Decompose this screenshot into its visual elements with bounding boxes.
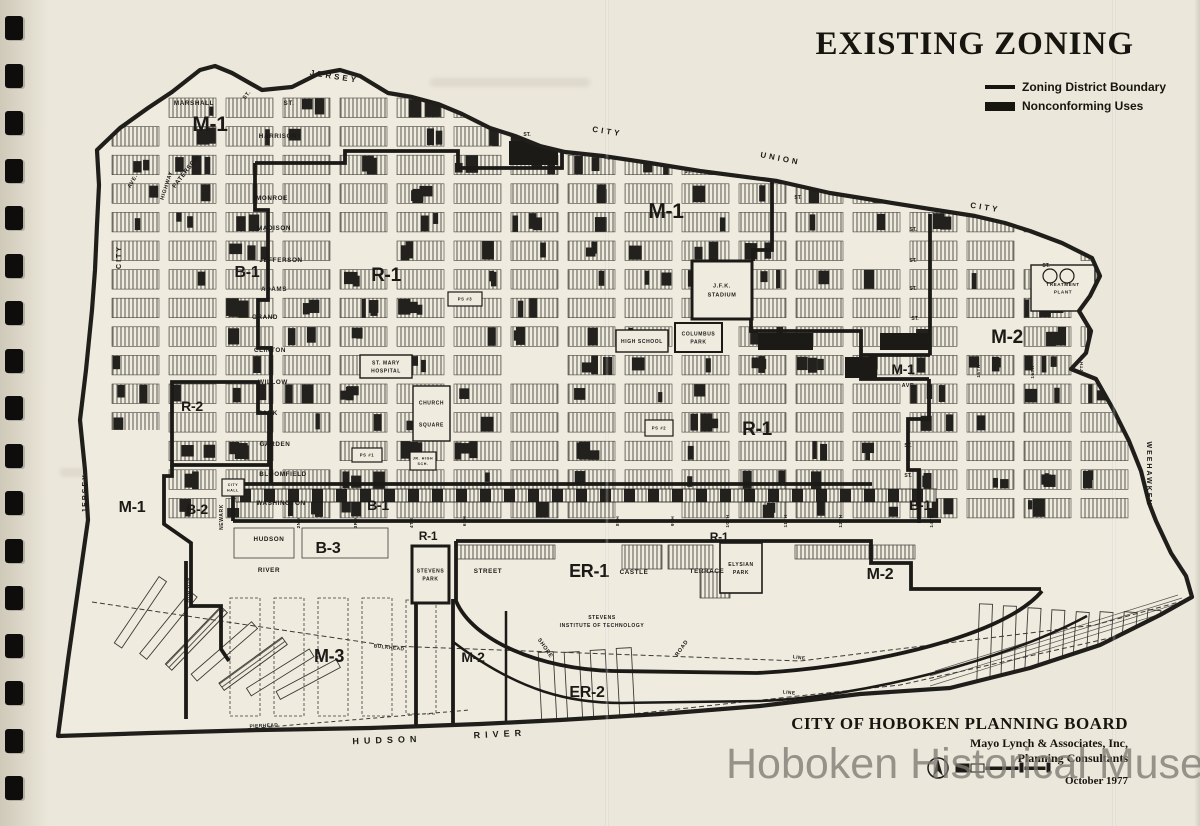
city-block: [967, 241, 1014, 261]
nonconforming-use: [455, 443, 461, 460]
city-block: [910, 470, 957, 490]
zone-label: R-1: [742, 419, 772, 440]
tank-icon: [1043, 269, 1057, 283]
city-block: [169, 241, 216, 261]
city-block: [340, 127, 387, 147]
city-block: [454, 241, 501, 261]
nonconforming-use: [578, 128, 590, 146]
landmark-label: ELYSIAN: [728, 562, 753, 568]
nonconforming-use: [260, 384, 267, 400]
nonconforming-use: [286, 385, 293, 404]
nonconforming-use: [700, 128, 706, 141]
street-label: BLOOMFIELD: [259, 471, 307, 478]
municipality-label: CITY: [116, 245, 123, 269]
landmark-label: PLANT: [1054, 289, 1072, 294]
numbered-street-label: 16TH: [1030, 365, 1036, 378]
street-label: GARDEN: [260, 441, 291, 448]
nonconforming-use: [233, 388, 241, 402]
nonconforming-use: [720, 217, 726, 231]
city-block: [967, 127, 1014, 147]
city-block: [112, 298, 159, 318]
city-block: [853, 155, 900, 175]
nonconforming-use: [459, 388, 469, 399]
nonconforming-use: [421, 216, 429, 232]
landmark-label: STEVENS: [588, 615, 616, 621]
nonconforming-use: [776, 270, 780, 288]
nonconforming-use: [592, 157, 600, 171]
landmark-outline: [412, 546, 449, 603]
nonconforming-use: [302, 384, 314, 403]
landmark-outline: [360, 355, 412, 378]
city-block: [739, 441, 786, 461]
nonconforming-use: [979, 155, 990, 173]
street-tick: ST.: [794, 195, 802, 201]
nonconforming-use: [529, 299, 536, 318]
nonconforming-use: [187, 216, 193, 228]
city-block: [910, 127, 957, 147]
municipality-label: UNION: [760, 150, 802, 167]
city-block: [454, 470, 501, 490]
landmark-label: PS #1: [360, 452, 374, 457]
nonconforming-use: [582, 362, 593, 372]
nonconforming-use: [247, 245, 255, 260]
city-block: [1081, 127, 1128, 147]
zone-label: B-3: [316, 540, 341, 557]
nonconforming-use: [817, 359, 824, 370]
zone-label: ER-2: [569, 684, 605, 701]
nonconforming-use: [182, 445, 194, 457]
nonconforming-use: [1056, 213, 1064, 228]
city-block: [283, 184, 330, 204]
nonconforming-use: [370, 300, 377, 316]
street-label: MONROE: [256, 195, 288, 202]
city-block: [910, 270, 957, 290]
city-block: [796, 441, 843, 461]
city-block: [169, 413, 216, 433]
nonconforming-use: [1033, 499, 1045, 517]
street-label: RIVER: [258, 567, 280, 574]
street-label: HUDSON: [254, 536, 285, 543]
nonconforming-use: [574, 156, 583, 174]
landmark-label: JR. HIGH: [413, 456, 433, 460]
numbered-street-label: 8TH: [615, 516, 621, 526]
museum-watermark: Hoboken Historical Museum: [726, 740, 1200, 789]
city-block: [682, 355, 729, 375]
nonconforming-use: [184, 474, 196, 488]
nonconforming-use: [817, 501, 825, 515]
street-tick: ST.: [909, 227, 917, 233]
city-block: [853, 470, 900, 490]
city-block: [796, 127, 843, 147]
scanned-page: J.F.K.STADIUMCOLUMBUSPARKHIGH SCHOOLST. …: [0, 0, 1200, 826]
landmark-label: PS #2: [652, 425, 666, 430]
nonconforming-use: [485, 472, 490, 481]
city-block: [739, 127, 786, 147]
nonconforming-use: [1088, 384, 1092, 403]
nonconforming-use: [201, 184, 210, 201]
nonconforming-use: [854, 106, 865, 118]
nonconforming-use: [198, 272, 206, 286]
nonconforming-use: [470, 441, 478, 458]
city-block: [910, 98, 957, 118]
nonconforming-use: [488, 327, 496, 346]
nonconforming-use: [992, 357, 1000, 372]
nonconforming-use: [491, 272, 496, 287]
nonconforming-use: [409, 99, 422, 117]
legend-label: Zoning District Boundary: [1022, 80, 1166, 94]
avenue-hatch-strip: [32, 237, 76, 339]
city-block: [796, 241, 843, 261]
street-label: CASTLE: [620, 569, 649, 576]
city-block: [967, 413, 1014, 433]
nonconforming-use: [340, 391, 347, 400]
nonconforming-use: [1042, 356, 1047, 372]
numbered-street-label: 12TH: [838, 514, 844, 527]
city-block: [682, 127, 729, 147]
numbered-street-label: 10TH: [725, 514, 731, 527]
city-block: [853, 127, 900, 147]
nonconforming-use: [591, 242, 597, 254]
city-block: [967, 298, 1014, 318]
street-tick: ST.: [909, 286, 917, 292]
nonconforming-use: [1024, 299, 1029, 317]
zone-label: R-1: [710, 530, 729, 544]
nonconforming-use: [362, 299, 366, 318]
city-block: [739, 212, 786, 232]
landmark-columbus-park: COLUMBUSPARK: [675, 323, 722, 352]
nonconforming-use: [1035, 129, 1040, 143]
nonconforming-use: [889, 507, 898, 517]
nonconforming-use: [820, 444, 827, 460]
nonconforming-use: [644, 271, 649, 285]
nonconforming-use: [811, 471, 821, 489]
city-block: [967, 155, 1014, 175]
city-block: [283, 270, 330, 290]
city-block: [340, 184, 387, 204]
city-block: [739, 98, 786, 118]
nonconforming-use: [626, 135, 637, 145]
nonconforming-use: [433, 213, 438, 224]
numbered-street-label: 2ND: [296, 517, 302, 528]
nonconforming-use: [514, 330, 521, 340]
nonconforming-use: [946, 414, 953, 431]
city-block: [967, 441, 1014, 461]
nonconforming-use: [940, 217, 951, 230]
city-block: [967, 384, 1014, 404]
landmark-label: STADIUM: [708, 292, 737, 298]
nonconforming-use: [662, 273, 672, 286]
zone-label: M-1: [648, 200, 684, 223]
nonconforming-use: [401, 441, 411, 458]
city-block: [1024, 184, 1071, 204]
street-tick: ST.: [911, 316, 919, 322]
nonconforming-use: [133, 161, 141, 172]
city-block: [625, 384, 672, 404]
numbered-street-label: 6TH: [462, 516, 468, 526]
landmark-label: INSTITUTE OF TECHNOLOGY: [560, 623, 645, 629]
city-block: [682, 184, 729, 204]
nonconforming-use: [874, 159, 881, 174]
numbered-street-label: 11TH: [783, 514, 789, 527]
nonconforming-use: [1054, 388, 1059, 403]
city-block: [682, 98, 729, 118]
legend-label: Nonconforming Uses: [1022, 99, 1143, 113]
nonconforming-use: [307, 327, 316, 343]
city-block: [625, 298, 672, 318]
nonconforming-use: [926, 155, 935, 174]
city-block: [511, 384, 558, 404]
city-block: [1081, 155, 1128, 175]
city-block: [796, 155, 843, 175]
landmark-label: ST. MARY: [372, 360, 400, 366]
landmark-label: CITY: [228, 483, 239, 487]
nonconforming-use: [253, 356, 260, 373]
city-block: [226, 155, 273, 175]
landmark-outline: [413, 386, 450, 441]
city-block: [1081, 184, 1128, 204]
city-block: [112, 327, 159, 347]
landmark-jfk-stadium: J.F.K.STADIUM: [692, 261, 752, 319]
landmark-outline: [675, 323, 722, 352]
nonconforming-use: [706, 358, 711, 372]
street-tick: ST.: [904, 443, 912, 449]
nonconforming-use: [1095, 160, 1105, 169]
municipality-label: WEEHAWKEN: [1145, 441, 1152, 506]
street-label: CLINTON: [254, 347, 286, 354]
nonconforming-use: [345, 272, 357, 282]
city-block: [169, 270, 216, 290]
nonconforming-use: [917, 358, 926, 373]
nonconforming-use: [1100, 356, 1105, 371]
nonconforming-use: [436, 131, 443, 145]
city-block: [853, 298, 900, 318]
nonconforming-use: [943, 498, 953, 514]
nonconforming-use: [855, 130, 860, 144]
nonconforming-use: [876, 106, 884, 116]
nonconforming-use: [877, 214, 885, 230]
zone-label: M-1: [119, 499, 146, 516]
city-block: [1024, 212, 1071, 232]
city-block: [910, 298, 957, 318]
planning-board-title: CITY OF HOBOKEN PLANNING BOARD: [791, 714, 1128, 734]
city-block: [454, 212, 501, 232]
city-block: [853, 441, 900, 461]
landmark-elysian-park: ELYSIANPARK: [720, 543, 762, 593]
city-block: [910, 241, 957, 261]
nonconforming-use: [812, 441, 816, 459]
zone-label: M-1: [891, 361, 915, 377]
nonconforming-use: [417, 305, 423, 315]
city-block: [454, 355, 501, 375]
city-block: [682, 384, 729, 404]
city-block: [625, 470, 672, 490]
nonconforming-use: [752, 358, 764, 369]
city-block: [226, 98, 273, 118]
nonconforming-use: [408, 302, 417, 313]
nonconforming-use: [759, 185, 765, 201]
city-block: [910, 184, 957, 204]
nonconforming-use: [315, 98, 324, 114]
city-block: [169, 327, 216, 347]
street-label: WASHINGTON: [256, 500, 305, 507]
numbered-street-label: 17TH: [1079, 361, 1085, 374]
nonconforming-use: [884, 98, 890, 110]
nonconforming-use: [518, 301, 523, 318]
city-block: [682, 241, 729, 261]
city-block: [169, 298, 216, 318]
city-block: [511, 98, 558, 118]
nonconforming-use: [632, 357, 645, 370]
nonconforming-use: [704, 129, 711, 145]
street-label: ADAMS: [261, 286, 287, 293]
street-label: NEWARK: [219, 504, 225, 530]
nonconforming-use: [244, 445, 249, 459]
zoning-map: J.F.K.STADIUMCOLUMBUSPARKHIGH SCHOOLST. …: [0, 0, 1200, 826]
nonconforming-use: [760, 271, 767, 282]
nonconforming-use: [230, 244, 243, 255]
city-block: [1081, 441, 1128, 461]
nonconforming-use: [302, 99, 312, 110]
nonconforming-use: [113, 356, 120, 369]
street-label: TERRACE: [690, 568, 725, 575]
city-block: [625, 127, 672, 147]
nonconforming-use: [236, 216, 246, 231]
city-block: [796, 413, 843, 433]
nonconforming-use: [629, 246, 642, 260]
water-label: HUDSON: [352, 734, 421, 746]
nonconforming-use: [972, 273, 977, 289]
nonconforming-use: [572, 130, 583, 145]
nonconforming-use: [288, 328, 296, 345]
nonconforming-use: [481, 417, 494, 432]
street-tick: ST.: [904, 473, 912, 479]
nonconforming-use: [473, 100, 480, 110]
nonconforming-use: [1028, 500, 1032, 509]
nonconforming-use: [690, 414, 698, 431]
municipality-label: CITY: [970, 201, 1001, 215]
nonconforming-use: [574, 388, 585, 400]
nonconforming-use: [599, 271, 605, 286]
nonconforming-use: [810, 214, 815, 230]
city-block: [739, 384, 786, 404]
city-block: [112, 270, 159, 290]
landmark-label: PARK: [690, 339, 706, 345]
nonconforming-use: [939, 385, 945, 402]
nonconforming-use: [688, 446, 694, 460]
city-block: [910, 384, 957, 404]
zoning-boundary-swatch: [985, 85, 1015, 89]
city-block: [853, 270, 900, 290]
nonconforming-use: [135, 218, 140, 230]
street-label: PARK: [258, 410, 278, 417]
city-block: [226, 355, 273, 375]
nonconforming-use: [114, 417, 124, 429]
page-edge: [1194, 0, 1200, 826]
nonconforming-use: [238, 301, 248, 318]
nonconforming-use: [590, 450, 600, 460]
zone-label: B-1: [909, 497, 931, 513]
landmark-label: HALL: [227, 489, 239, 493]
nonconforming-use: [658, 392, 662, 402]
nonconforming-use: [529, 213, 537, 229]
nonconforming-use: [401, 245, 409, 260]
city-block: [340, 98, 387, 118]
zone-label: M-1: [192, 113, 228, 136]
numbered-street-label: 14TH: [929, 514, 935, 527]
nonconforming-use: [351, 476, 361, 488]
landmark-outline: [720, 543, 762, 593]
city-block: [511, 470, 558, 490]
street-label: ST.: [284, 100, 295, 107]
municipality-label: JERSEY: [82, 473, 89, 513]
city-block: [853, 212, 900, 232]
fold-crease-right: [1112, 0, 1116, 826]
landmark-jr-high-school: JR. HIGHSCH.: [410, 452, 436, 470]
fold-crease-center: [605, 0, 609, 826]
nonconforming-use: [750, 332, 758, 345]
nonconforming-use: [694, 247, 702, 260]
zone-label: R-1: [419, 529, 438, 543]
nonconforming-use: [362, 156, 374, 172]
nonconforming-use: [575, 471, 586, 483]
zone-label: M-2: [461, 649, 485, 665]
nonconforming-use: [977, 415, 986, 430]
city-block: [967, 498, 1014, 518]
numbered-street-label: 15TH: [976, 364, 982, 377]
nonconforming-use: [1100, 127, 1109, 139]
landmark-label: CHURCH: [419, 400, 444, 406]
city-block: [397, 470, 444, 490]
landmark-label: PS #3: [458, 296, 472, 301]
landmark-city-hall: CITYHALL: [222, 479, 244, 496]
city-block: [853, 413, 900, 433]
landmark-label: TREATMENT: [1046, 282, 1079, 287]
landmark-label: HOSPITAL: [371, 368, 401, 374]
city-block: [910, 155, 957, 175]
zone-label: B-2: [186, 501, 208, 517]
landmark-label: SCH.: [418, 462, 429, 466]
city-block: [853, 98, 900, 118]
nonconforming-use: [889, 185, 899, 200]
city-block: [1081, 355, 1128, 375]
zone-label: B-1: [235, 264, 260, 281]
nonconforming-use: [1083, 471, 1092, 489]
legend-row-boundary: Zoning District Boundary: [985, 80, 1166, 94]
city-block: [397, 270, 444, 290]
landmark-outline: [222, 479, 244, 496]
street-label: AVE.: [902, 383, 917, 389]
nonconforming-use: [419, 186, 432, 197]
landmark-label: COLUMBUS: [682, 331, 716, 337]
zone-label: R-1: [371, 265, 401, 286]
street-label: HUDSON: [186, 577, 192, 602]
nonconforming-use: [694, 384, 705, 396]
street-label: STREET: [474, 568, 502, 575]
nonconforming-use: [709, 242, 718, 260]
city-block: [511, 241, 558, 261]
city-block: [283, 155, 330, 175]
city-block: [1081, 212, 1128, 232]
nonconforming-use: [549, 130, 558, 146]
city-block: [1081, 498, 1128, 518]
nonconforming-use: [315, 413, 319, 429]
landmark-outline: [410, 452, 436, 470]
city-block: [625, 441, 672, 461]
nonconforming-use: [866, 445, 870, 460]
street-label: MARSHALL: [174, 100, 214, 107]
nonconforming-use: [968, 102, 978, 116]
street-tick: ST.: [523, 132, 531, 138]
